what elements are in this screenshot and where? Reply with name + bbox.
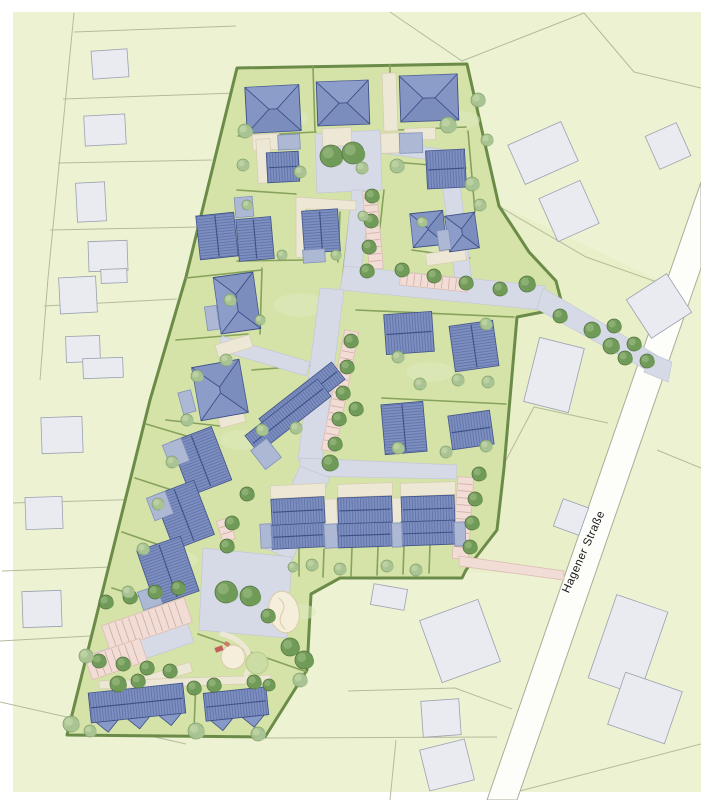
- tree-icon: [277, 250, 288, 260]
- house-gable: [426, 149, 467, 189]
- house-gable: [266, 151, 300, 183]
- tree-icon: [480, 318, 493, 330]
- tree-icon: [410, 564, 423, 576]
- house-gable: [338, 496, 393, 524]
- site-plan-map: [0, 0, 701, 800]
- tree-icon: [84, 725, 97, 737]
- tree-icon: [152, 498, 165, 510]
- tree-icon: [224, 294, 237, 306]
- house-garage: [399, 133, 423, 154]
- house-gable: [196, 212, 238, 260]
- tree-icon: [256, 424, 269, 436]
- tree-icon: [181, 414, 194, 426]
- house-gable: [236, 217, 275, 262]
- tree-icon: [381, 560, 394, 572]
- tree-icon: [414, 378, 427, 390]
- tree-icon: [334, 563, 347, 575]
- tree-icon: [191, 370, 204, 382]
- tree-icon: [452, 374, 465, 386]
- tree-icon: [306, 559, 319, 571]
- house-hip: [192, 359, 249, 421]
- tree-icon: [166, 456, 179, 468]
- house-gable: [338, 522, 393, 548]
- tree-icon: [440, 446, 453, 458]
- tree-icon: [137, 543, 150, 555]
- house-garage: [437, 229, 452, 250]
- tree-icon: [480, 440, 493, 452]
- house-gable: [384, 311, 435, 354]
- tree-icon: [255, 315, 266, 325]
- tree-icon: [392, 351, 405, 363]
- house-gable: [401, 495, 455, 523]
- house-garage: [260, 524, 272, 549]
- site-plan-canvas: Hagener Straße: [0, 0, 701, 800]
- tree-icon: [356, 162, 369, 174]
- house-gable: [271, 523, 325, 550]
- house-gable: [401, 520, 455, 546]
- house-hip: [213, 272, 261, 334]
- tree-icon: [220, 354, 233, 366]
- tree-icon: [482, 376, 495, 388]
- tree-icon: [474, 199, 487, 211]
- tree-icon: [122, 586, 135, 598]
- tree-icon: [237, 159, 250, 171]
- house-garage: [324, 524, 338, 549]
- house-gable: [271, 497, 325, 526]
- house-hip: [399, 74, 459, 122]
- house-gable: [302, 209, 341, 253]
- tree-icon: [242, 200, 253, 210]
- house-garage: [392, 523, 403, 547]
- house-hip: [316, 80, 370, 126]
- tree-icon: [392, 442, 405, 454]
- tree-icon: [331, 250, 342, 260]
- tree-icon: [481, 134, 494, 146]
- house-garage: [303, 249, 326, 264]
- tree-icon: [358, 211, 369, 221]
- house-hip: [245, 85, 301, 134]
- tree-icon: [294, 166, 307, 178]
- tree-icon: [288, 562, 299, 572]
- tree-icon: [263, 679, 276, 691]
- house-garage: [278, 134, 301, 150]
- tree-icon: [290, 422, 303, 434]
- tree-icon: [417, 217, 428, 227]
